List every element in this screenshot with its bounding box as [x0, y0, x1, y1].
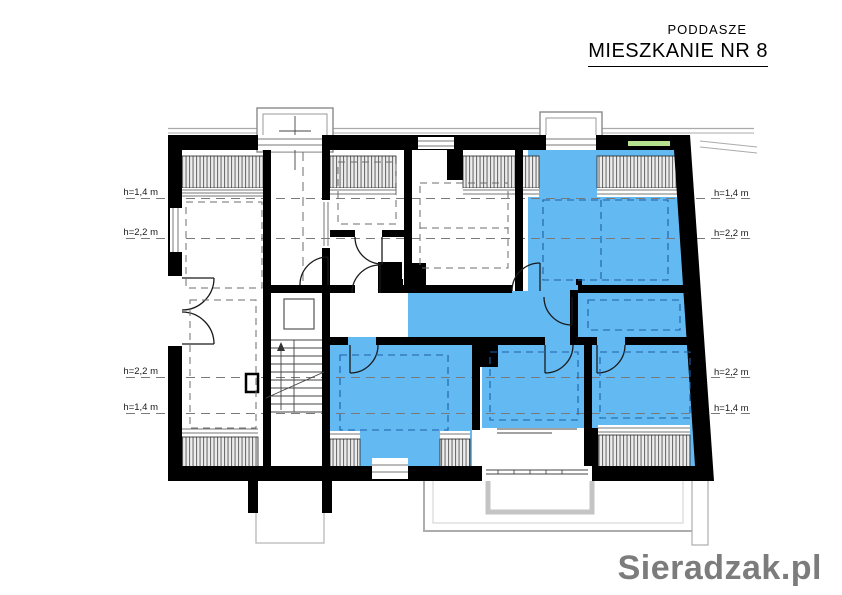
floor-plan-drawing: h=1,4 m h=2,2 m h=2,2 m h=1,4 m h=1,4 m …	[0, 0, 842, 595]
height-labels-left: h=1,4 m h=2,2 m h=2,2 m h=1,4 m	[123, 187, 158, 413]
height-label: h=1,4 m	[123, 402, 158, 413]
door-swing	[355, 237, 382, 264]
drawing-header: PODDASZE MIESZKANIE NR 8	[588, 22, 768, 67]
height-label: h=2,2 m	[714, 228, 749, 239]
door-swing	[352, 265, 380, 293]
floor-subtitle: PODDASZE	[588, 22, 747, 37]
watermark: Sieradzak.pl	[618, 549, 822, 588]
height-label: h=1,4 m	[714, 188, 749, 199]
height-label: h=2,2 m	[123, 366, 158, 377]
room-corridor	[408, 291, 692, 345]
page-title: MIESZKANIE NR 8	[588, 40, 768, 67]
door-swing	[182, 278, 214, 310]
skylight	[284, 299, 314, 329]
height-label: h=2,2 m	[714, 367, 749, 378]
height-label: h=1,4 m	[714, 403, 749, 414]
stairs-up-arrow	[277, 342, 285, 351]
roof-accent-green	[628, 141, 670, 146]
loggia	[482, 428, 592, 470]
height-label: h=1,4 m	[123, 187, 158, 198]
height-label: h=2,2 m	[123, 227, 158, 238]
height-labels-right: h=1,4 m h=2,2 m h=2,2 m h=1,4 m	[714, 188, 749, 414]
door-swing	[182, 312, 214, 344]
floor-plan-page: h=1,4 m h=2,2 m h=2,2 m h=1,4 m h=1,4 m …	[0, 0, 842, 595]
balcony	[424, 470, 708, 545]
